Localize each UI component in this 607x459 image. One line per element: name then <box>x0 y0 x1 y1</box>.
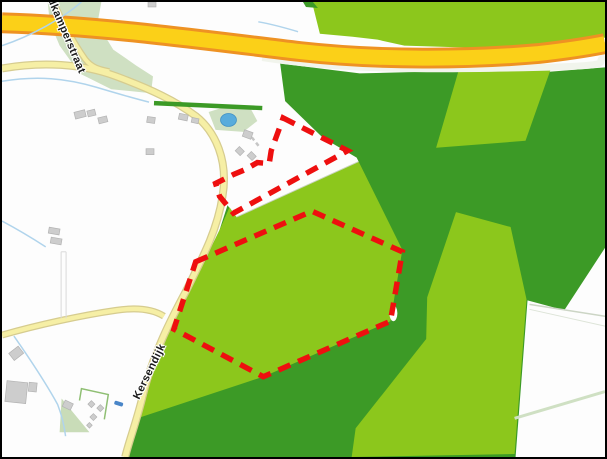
map-viewport[interactable]: dkamperstraat Kersendijk <box>0 0 607 459</box>
building <box>5 381 28 404</box>
building <box>147 116 156 123</box>
building <box>146 149 154 155</box>
pond <box>221 114 237 127</box>
building <box>28 382 37 392</box>
building <box>191 117 199 123</box>
map-canvas <box>2 2 605 457</box>
building <box>148 2 156 7</box>
